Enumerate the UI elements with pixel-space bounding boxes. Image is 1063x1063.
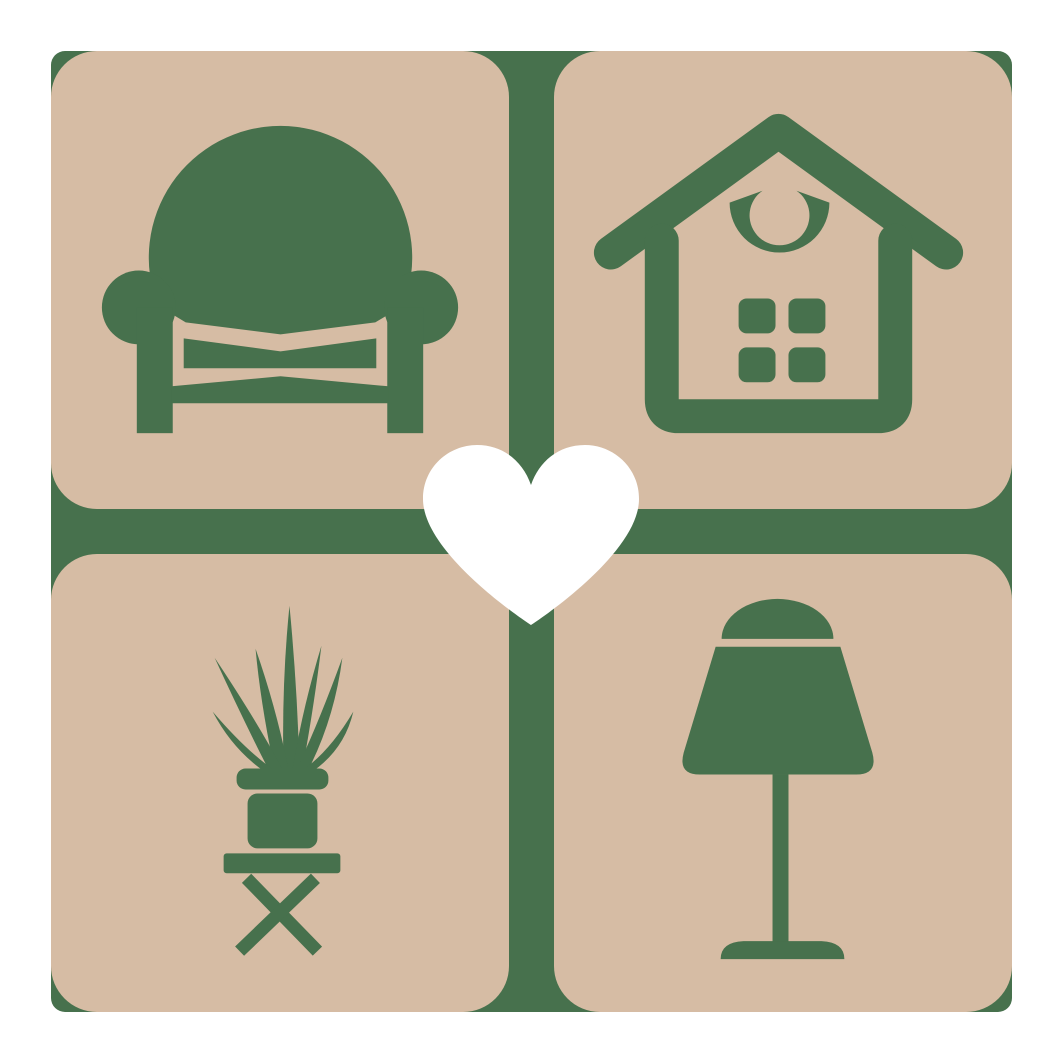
armchair-icon bbox=[51, 51, 509, 509]
heart-icon bbox=[423, 445, 639, 625]
logo-canvas bbox=[0, 0, 1063, 1063]
house-icon bbox=[554, 51, 1012, 509]
tile-armchair bbox=[51, 51, 509, 509]
tile-house bbox=[554, 51, 1012, 509]
